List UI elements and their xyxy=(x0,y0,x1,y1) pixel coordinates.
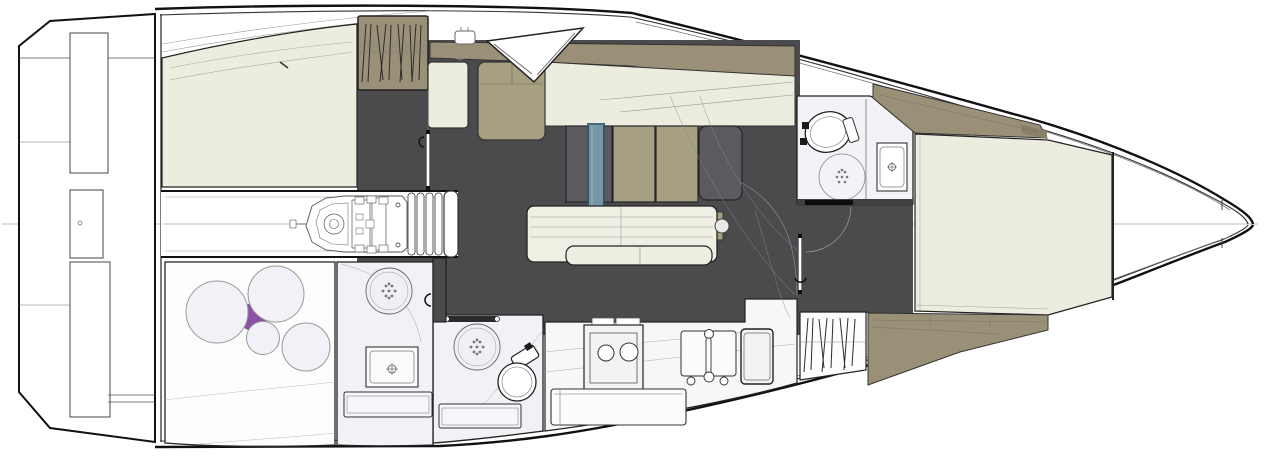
hanging-locker-forward xyxy=(800,312,866,380)
step-platform xyxy=(444,191,458,257)
head-drawer xyxy=(439,404,521,428)
aft-head xyxy=(433,315,543,443)
shower-aft-head xyxy=(454,324,500,370)
sink-mid-head xyxy=(366,347,418,387)
stove-burner xyxy=(598,345,614,361)
galley-drawers xyxy=(551,389,686,425)
mid-head-drawer xyxy=(344,392,432,417)
yacht-floorplan xyxy=(0,0,1280,456)
shower-mid-head xyxy=(366,268,412,314)
stove-burner xyxy=(620,343,638,361)
head-door xyxy=(448,316,496,322)
head-door xyxy=(805,200,853,205)
engine-compartment xyxy=(161,191,458,257)
faucet xyxy=(705,330,714,339)
fridge xyxy=(741,329,773,384)
deck-fitting xyxy=(455,31,475,44)
mid-head xyxy=(337,258,446,446)
hanging-locker-aft xyxy=(358,16,428,90)
transom xyxy=(19,14,161,442)
stove xyxy=(584,318,643,390)
floorplan-drawing xyxy=(0,0,1280,456)
sink-forward-head xyxy=(877,143,907,191)
salon-bench xyxy=(566,246,712,265)
nav-table xyxy=(428,62,468,128)
head-partition xyxy=(433,258,446,322)
aft-cabin-starboard xyxy=(165,262,335,446)
table-leg xyxy=(715,219,729,233)
v-berth xyxy=(915,134,1112,315)
forward-passage xyxy=(797,205,913,313)
